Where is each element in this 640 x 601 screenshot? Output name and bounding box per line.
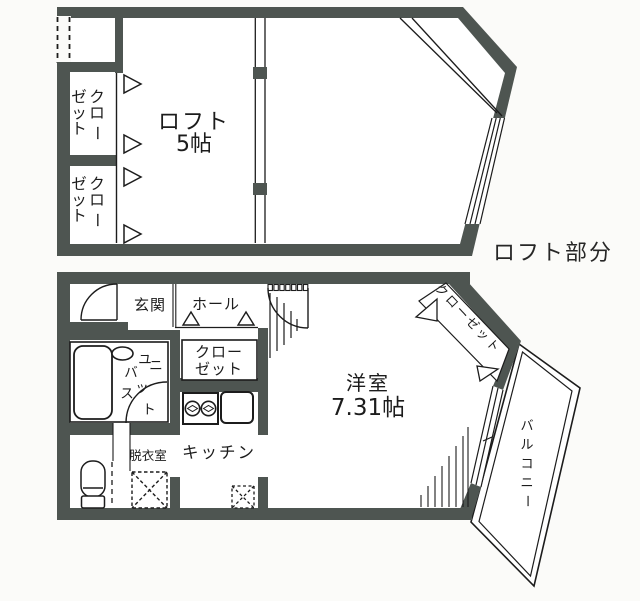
balcony-char: バ xyxy=(520,419,533,434)
hall-label: ホール xyxy=(192,295,240,313)
balcony-char: コ xyxy=(520,457,533,472)
floor-plan-page: ロフト 5帖 ク ロ ー ゼ ッ ト ク ロ ー ゼ ッ ト ロフト部分 xyxy=(0,0,640,601)
unit-bath-char: ス xyxy=(120,386,134,402)
loft-ladder-band xyxy=(268,285,308,291)
balcony-char: ル xyxy=(520,438,533,453)
loft-caption: ロフト部分 xyxy=(493,241,613,266)
loft-hatch-room-wall-h xyxy=(57,62,123,72)
unit-bath-char: ト xyxy=(142,402,156,418)
closet-label-line1: クロー xyxy=(195,343,243,361)
bathtub xyxy=(74,346,112,419)
balcony-char: ー xyxy=(519,494,534,507)
closet-char: ー xyxy=(88,212,106,228)
loft-room-size: 5帖 xyxy=(176,132,212,157)
dressing-room-label: 脱衣室 xyxy=(129,448,167,463)
kitchen-counter xyxy=(183,392,253,424)
main-wall-left xyxy=(57,272,70,520)
closet-char: ロ xyxy=(89,191,105,209)
kitchen-label: キッチン xyxy=(182,443,256,462)
main-floor-plan: クローゼット 玄関 ホール クロー ゼット ユ ニ バ ス ッ ト 脱衣室 キッ… xyxy=(57,272,580,586)
loft-closet-divider-wall xyxy=(57,155,116,166)
loft-closet1-label: ク ロ ー ゼ ッ ト xyxy=(71,88,106,141)
balcony-label: バ ル コ ニ ー xyxy=(519,419,534,508)
loft-closet2-label: ク ロ ー ゼ ッ ト xyxy=(71,175,106,228)
closet-char: ロ xyxy=(89,104,105,122)
unit-bath-char: ッ xyxy=(135,380,149,396)
unit-bath-char: ニ xyxy=(149,358,163,374)
toilet xyxy=(81,461,105,508)
closet-char: ー xyxy=(88,125,106,141)
kitchen-sink xyxy=(221,392,253,423)
loft-plan: ロフト 5帖 ク ロ ー ゼ ッ ト ク ロ ー ゼ ッ ト ロフト部分 xyxy=(55,7,613,266)
bedroom-label: 洋室 xyxy=(346,371,390,395)
loft-room-floor xyxy=(70,18,505,244)
entrance-label: 玄関 xyxy=(134,296,166,314)
closet-char: ト xyxy=(71,207,87,225)
closet-char: ト xyxy=(71,120,87,138)
balcony-char: ニ xyxy=(520,476,533,491)
unit-bath-char: バ xyxy=(124,365,138,381)
floor-plan-svg: ロフト 5帖 ク ロ ー ゼ ッ ト ク ロ ー ゼ ッ ト ロフト部分 xyxy=(0,0,640,601)
closet-label-line2: ゼット xyxy=(195,360,243,378)
bedroom-size: 7.31帖 xyxy=(331,395,405,421)
main-wall-top xyxy=(57,272,470,284)
bath-sink xyxy=(112,347,133,360)
